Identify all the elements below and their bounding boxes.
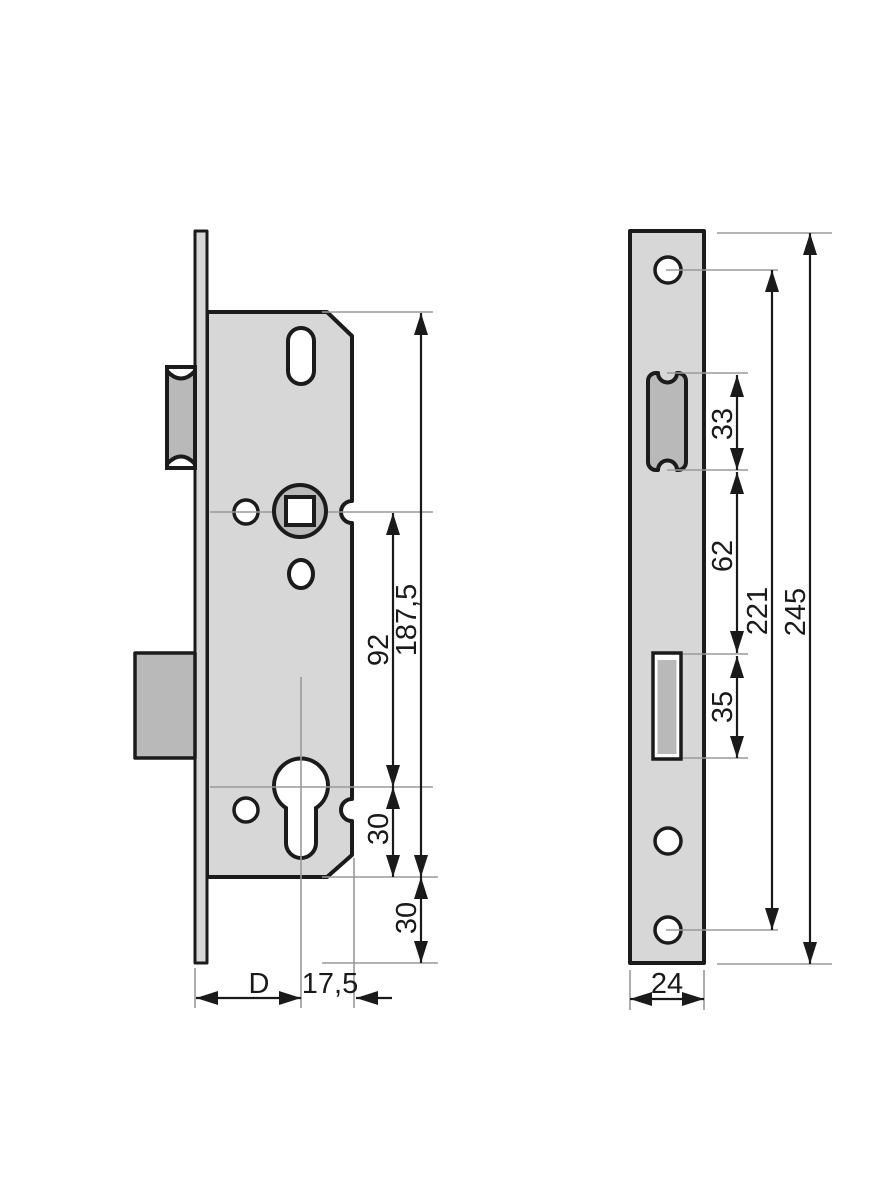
dim-label-35: 35 (707, 691, 739, 723)
bolt-opening (653, 653, 681, 759)
dim-label-187-5: 187,5 (391, 584, 423, 657)
arrowhead-up (414, 877, 428, 899)
arrowhead-left (196, 991, 218, 1005)
dim-33: 33 (707, 375, 744, 470)
dim-label-24: 24 (651, 968, 683, 1000)
small-oval-hole (289, 560, 313, 588)
dim-35: 35 (707, 656, 744, 758)
top-slot (288, 328, 314, 384)
arrowhead-left (356, 991, 378, 1005)
arrowhead-up (730, 472, 744, 494)
dim-92: 92 (363, 513, 400, 787)
fixing-hole-bottom (234, 798, 258, 822)
arrowhead-up (730, 375, 744, 397)
dim-label-30-upper: 30 (363, 813, 395, 845)
arrowhead-down (730, 448, 744, 470)
dim-221: 221 (742, 270, 779, 930)
dim-245: 245 (780, 233, 817, 964)
dim-62: 62 (707, 472, 744, 653)
arrowhead-up (414, 313, 428, 335)
arrowhead-down (765, 908, 779, 930)
arrowhead-left (630, 992, 652, 1006)
arrowhead-up (386, 787, 400, 809)
latch-bolt (167, 367, 195, 468)
arrowhead-up (803, 233, 817, 255)
arrowhead-right (682, 992, 704, 1006)
arrowhead-down (414, 941, 428, 963)
arrowhead-down (414, 855, 428, 877)
dim-label-245: 245 (780, 588, 812, 636)
dim-label-30-lower: 30 (391, 902, 423, 934)
latch-opening (648, 373, 686, 470)
arrowhead-down (730, 736, 744, 758)
spindle-square-hole (286, 497, 314, 525)
dim-label-33: 33 (707, 408, 739, 440)
dim-30-lower: 30 (391, 877, 428, 963)
arrowhead-right (279, 991, 301, 1005)
spindle-hub (274, 485, 326, 537)
dead-bolt (135, 653, 195, 758)
dim-label-62: 62 (707, 540, 739, 572)
lock-dimension-drawing: 187,5 92 30 30 D 17,5 33 (0, 0, 881, 1201)
dim-label-D: D (249, 968, 270, 1000)
cylinder-fixing-hole (655, 828, 681, 854)
dim-24: 24 (630, 968, 704, 1006)
arrowhead-down (803, 942, 817, 964)
arrowhead-up (386, 513, 400, 535)
dim-187-5: 187,5 (391, 313, 428, 877)
dim-label-17-5: 17,5 (302, 968, 358, 1000)
dim-17-5: 17,5 (302, 968, 392, 1005)
arrowhead-down (386, 855, 400, 877)
dim-30-upper: 30 (363, 787, 400, 877)
latch-bolt-face (167, 371, 195, 464)
arrowhead-down (386, 765, 400, 787)
dim-label-92: 92 (363, 634, 395, 666)
arrowhead-up (730, 656, 744, 678)
arrowhead-up (765, 270, 779, 292)
dim-backset-D: D (196, 968, 301, 1005)
bolt-opening-bolt-face (658, 660, 677, 754)
dim-label-221: 221 (742, 587, 774, 635)
faceplate-side (195, 231, 207, 963)
